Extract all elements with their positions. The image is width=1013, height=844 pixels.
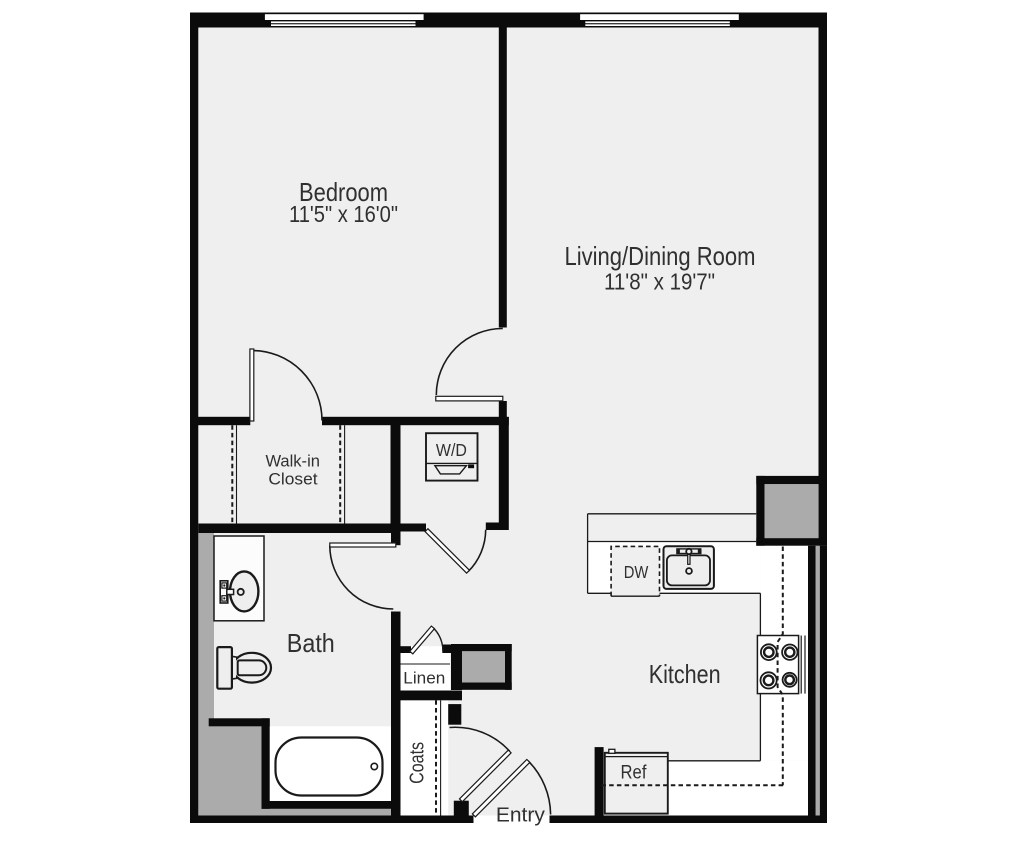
- svg-text:Walk-in: Walk-in: [265, 452, 320, 471]
- svg-text:DW: DW: [624, 562, 649, 582]
- svg-text:Kitchen: Kitchen: [649, 659, 721, 689]
- svg-text:Linen: Linen: [403, 668, 445, 687]
- svg-text:Living/Dining Room: Living/Dining Room: [565, 241, 756, 271]
- svg-text:Closet: Closet: [268, 469, 317, 488]
- svg-text:Coats: Coats: [407, 742, 429, 784]
- svg-text:11'5" x 16'0": 11'5" x 16'0": [289, 201, 398, 227]
- svg-text:Entry: Entry: [496, 804, 546, 827]
- svg-text:Bath: Bath: [287, 628, 335, 658]
- svg-text:W/D: W/D: [436, 440, 467, 460]
- svg-text:11'8" x 19'7": 11'8" x 19'7": [604, 269, 715, 295]
- svg-text:Ref: Ref: [621, 763, 648, 784]
